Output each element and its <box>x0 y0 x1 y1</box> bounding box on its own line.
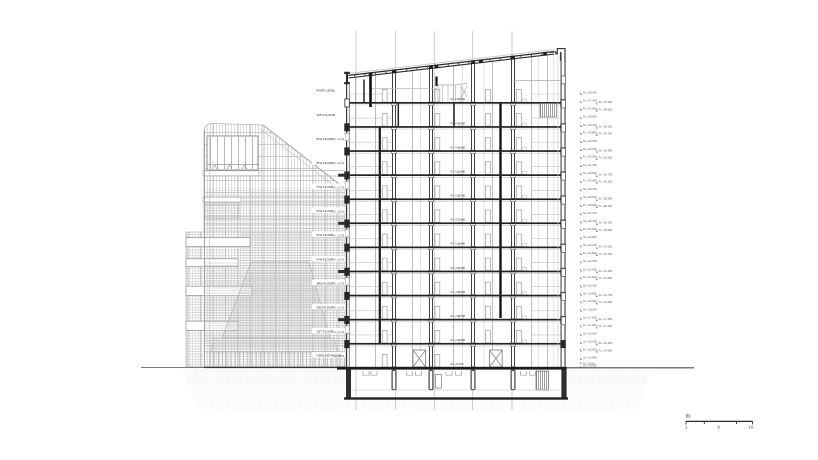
svg-text:4TH FLOOR: 4TH FLOOR <box>317 257 335 261</box>
svg-text:FL +30.400: FL +30.400 <box>583 179 597 183</box>
svg-text:SL +22.000: SL +22.000 <box>583 267 597 271</box>
svg-text:SL +37.400: SL +37.400 <box>583 99 597 103</box>
svg-text:SL +26.400: SL +26.400 <box>583 219 597 223</box>
svg-text:FL +27.20: FL +27.20 <box>334 186 345 189</box>
svg-text:FL +26.000: FL +26.000 <box>583 227 597 231</box>
svg-text:FL +15.000: FL +15.000 <box>583 347 597 351</box>
svg-text:SL +27.000: SL +27.000 <box>583 211 597 215</box>
svg-text:SL +30.750: SL +30.750 <box>599 173 613 177</box>
svg-text:GL +0.000: GL +0.000 <box>583 362 595 365</box>
svg-text:SL +15.400: SL +15.400 <box>583 340 597 344</box>
svg-text:FL +17.200: FL +17.200 <box>583 323 597 327</box>
svg-text:FL +14.950: FL +14.950 <box>599 348 613 352</box>
svg-text:FL +0.000: FL +0.000 <box>451 362 464 366</box>
svg-text:SL +16.000: SL +16.000 <box>583 332 597 336</box>
svg-text:SL +32.950: SL +32.950 <box>599 148 613 152</box>
svg-text:FL +32.600: FL +32.600 <box>583 155 597 159</box>
svg-text:SL +29.200: SL +29.200 <box>583 187 597 191</box>
svg-text:9TH FLOOR: 9TH FLOOR <box>317 137 335 141</box>
svg-text:SL +35.150: SL +35.150 <box>599 124 613 128</box>
svg-text:FL +34.100: FL +34.100 <box>451 145 466 149</box>
svg-text:SL +22.600: SL +22.600 <box>583 259 597 263</box>
svg-text:FL +32.550: FL +32.550 <box>599 156 613 160</box>
svg-text:SL +24.200: SL +24.200 <box>583 243 597 247</box>
svg-text:FL +30.350: FL +30.350 <box>599 180 613 184</box>
svg-text:SL +28.600: SL +28.600 <box>583 195 597 199</box>
svg-text:FL +22.80: FL +22.80 <box>334 234 345 237</box>
svg-text:FL +34.800: FL +34.800 <box>583 131 597 135</box>
svg-text:SL +24.800: SL +24.800 <box>583 235 597 239</box>
svg-text:FL +16.500: FL +16.500 <box>451 338 466 342</box>
svg-text:10: 10 <box>749 425 754 430</box>
svg-text:FL +19.350: FL +19.350 <box>599 300 613 304</box>
svg-text:5TH FLOOR: 5TH FLOOR <box>317 233 335 237</box>
svg-text:ROOF LEVEL: ROOF LEVEL <box>317 89 336 93</box>
svg-text:FL +18.700: FL +18.700 <box>451 314 466 318</box>
svg-text:FL +38.500: FL +38.500 <box>451 97 466 101</box>
svg-text:SL +17.550: SL +17.550 <box>599 317 613 321</box>
svg-text:SL +19.750: SL +19.750 <box>599 293 613 297</box>
svg-text:FL +20.900: FL +20.900 <box>451 290 466 294</box>
svg-text:FL +20.60: FL +20.60 <box>334 259 345 262</box>
svg-text:SL +20.400: SL +20.400 <box>583 283 597 287</box>
svg-text:FL +16.20: FL +16.20 <box>334 307 345 310</box>
svg-text:FL +34.750: FL +34.750 <box>599 132 613 136</box>
svg-text:SL +35.200: SL +35.200 <box>583 123 597 127</box>
svg-text:8TH FLOOR: 8TH FLOOR <box>317 161 335 165</box>
svg-text:FL +31.900: FL +31.900 <box>451 170 466 174</box>
svg-text:SL +21.950: SL +21.950 <box>599 269 613 273</box>
svg-text:FL +25.950: FL +25.950 <box>599 228 613 232</box>
svg-text:SL +38.000: SL +38.000 <box>583 91 597 95</box>
svg-text:FL +31.60: FL +31.60 <box>334 138 345 141</box>
svg-text:FL +19.400: FL +19.400 <box>583 299 597 303</box>
svg-text:FL +28.200: FL +28.200 <box>583 203 597 207</box>
svg-text:SL +28.550: SL +28.550 <box>599 197 613 201</box>
svg-text:FL +27.500: FL +27.500 <box>451 218 466 222</box>
svg-text:FL +36.300: FL +36.300 <box>451 121 466 125</box>
svg-text:FL +14.00: FL +14.00 <box>334 331 345 334</box>
svg-text:m: m <box>686 413 691 420</box>
svg-text:3RD FLOOR: 3RD FLOOR <box>317 281 335 285</box>
svg-text:FL +23.750: FL +23.750 <box>599 252 613 256</box>
svg-text:FL +36.950: FL +36.950 <box>599 107 613 111</box>
svg-text:FL +17.150: FL +17.150 <box>599 324 613 328</box>
svg-text:FL +25.00: FL +25.00 <box>334 210 345 213</box>
svg-text:6TH FLOOR: 6TH FLOOR <box>317 209 335 213</box>
svg-text:FL +28.150: FL +28.150 <box>599 204 613 208</box>
svg-text:SL +13.800: SL +13.800 <box>583 356 597 360</box>
svg-text:FL +23.100: FL +23.100 <box>451 266 466 270</box>
svg-text:FL +11.80: FL +11.80 <box>334 355 345 358</box>
svg-text:FL +37.000: FL +37.000 <box>583 106 597 110</box>
svg-text:FL +21.550: FL +21.550 <box>599 276 613 280</box>
svg-text:2ND FLOOR: 2ND FLOOR <box>317 306 335 310</box>
svg-text:SL +17.600: SL +17.600 <box>583 316 597 320</box>
svg-text:SL +24.150: SL +24.150 <box>599 245 613 249</box>
svg-text:SL +26.350: SL +26.350 <box>599 221 613 225</box>
svg-text:FL +29.40: FL +29.40 <box>334 162 345 165</box>
svg-text:SL +18.200: SL +18.200 <box>583 307 597 311</box>
svg-text:FL +18.40: FL +18.40 <box>334 283 345 286</box>
svg-text:SL +31.400: SL +31.400 <box>583 163 597 167</box>
svg-text:SL +15.350: SL +15.350 <box>599 341 613 345</box>
svg-text:SL +37.350: SL +37.350 <box>599 100 613 104</box>
svg-text:SL +19.800: SL +19.800 <box>583 291 597 295</box>
svg-text:FL +23.800: FL +23.800 <box>583 251 597 255</box>
svg-text:SL +30.800: SL +30.800 <box>583 171 597 175</box>
svg-text:SL +33.000: SL +33.000 <box>583 147 597 151</box>
svg-text:FL +29.700: FL +29.700 <box>451 194 466 198</box>
svg-text:1ST FLOOR: 1ST FLOOR <box>317 330 334 334</box>
svg-text:FL +25.300: FL +25.300 <box>451 242 466 246</box>
svg-text:FL +21.600: FL +21.600 <box>583 275 597 279</box>
svg-text:SL +35.800: SL +35.800 <box>583 115 597 119</box>
svg-text:SL +33.600: SL +33.600 <box>583 139 597 143</box>
svg-text:7TH FLOOR: 7TH FLOOR <box>317 185 335 189</box>
svg-text:10TH FLOOR: 10TH FLOOR <box>317 113 336 117</box>
